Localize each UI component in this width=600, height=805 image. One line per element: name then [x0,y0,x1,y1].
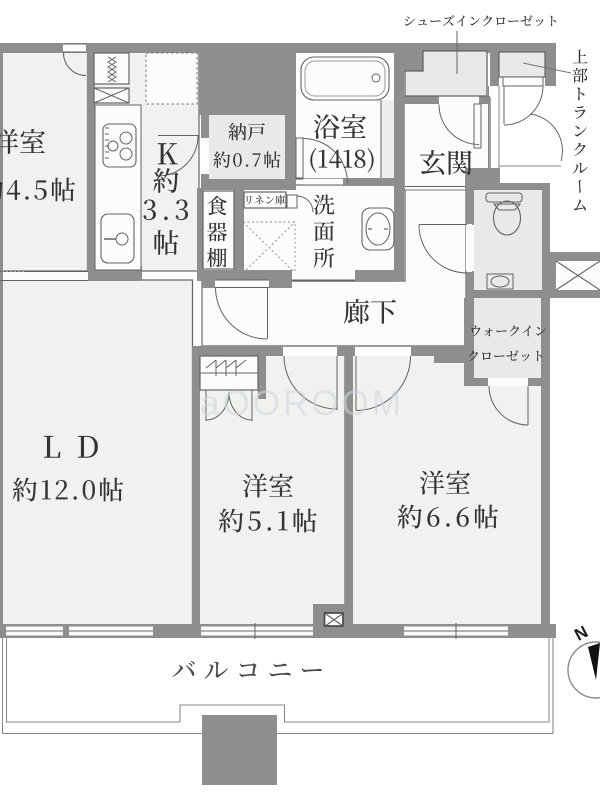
svg-text:aOOROOM: aOOROOM [200,384,404,423]
